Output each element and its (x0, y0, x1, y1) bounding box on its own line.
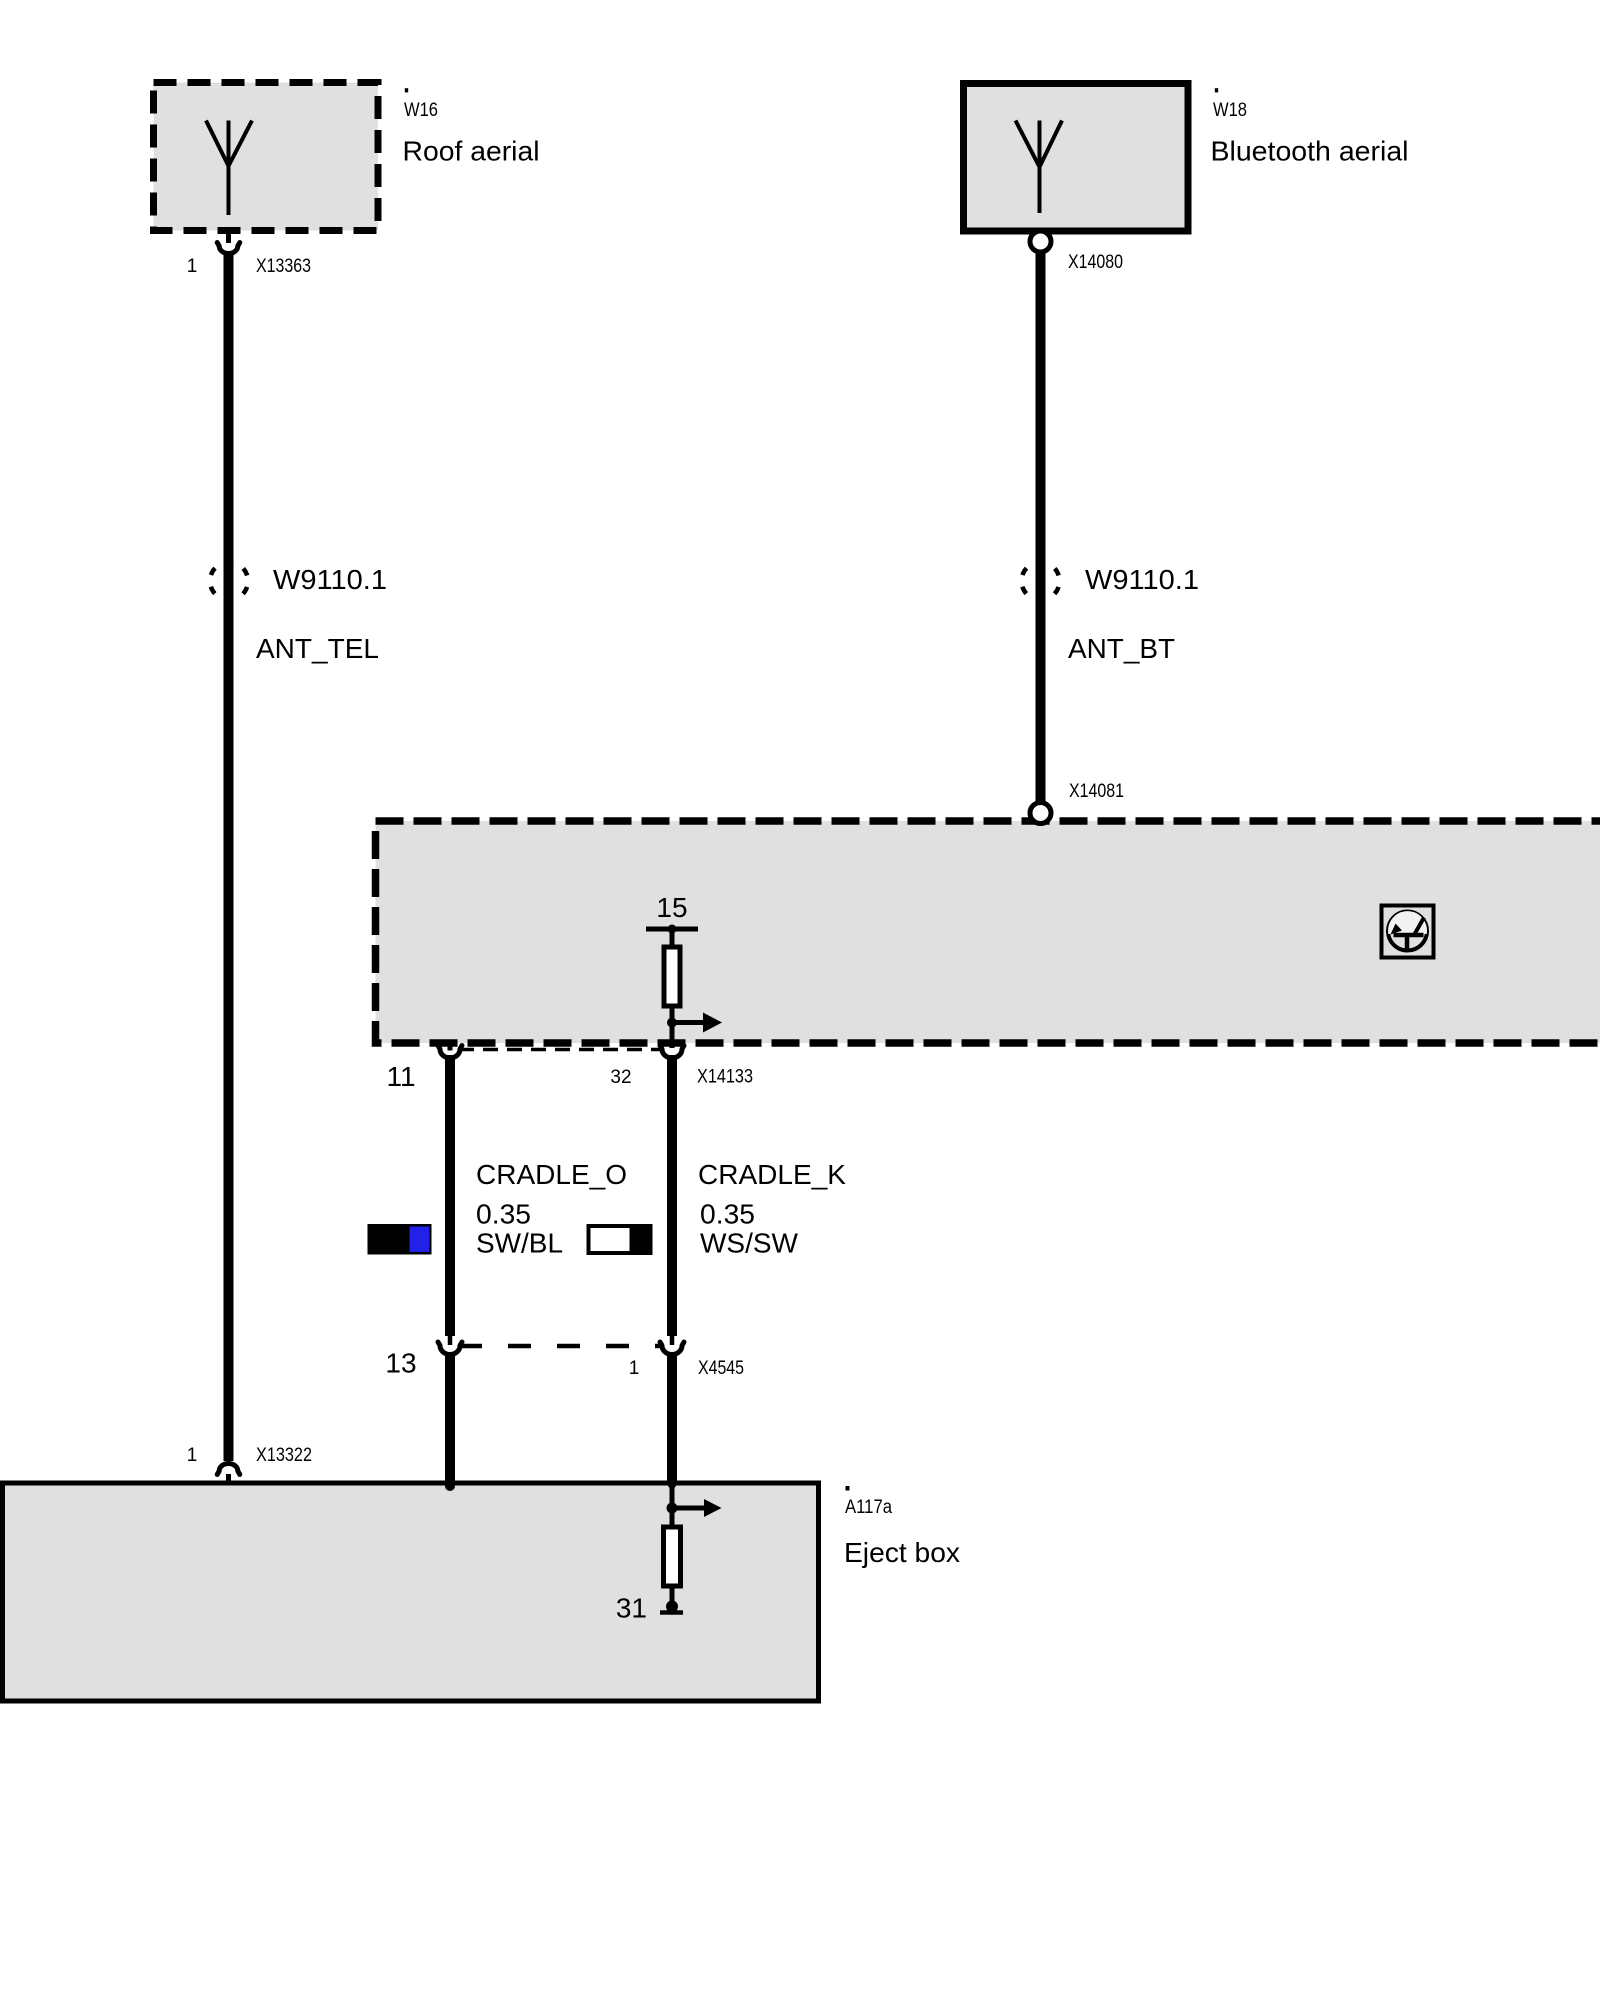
svg-text:32: 32 (610, 1067, 631, 1088)
svg-text:11: 11 (386, 1061, 415, 1092)
svg-text:X14080: X14080 (1068, 252, 1123, 273)
svg-text:CRADLE_O: CRADLE_O (476, 1159, 627, 1190)
svg-text:W16: W16 (404, 100, 438, 121)
svg-text:13: 13 (385, 1348, 416, 1379)
svg-text:0.35: 0.35 (700, 1199, 755, 1230)
svg-text:1: 1 (629, 1358, 640, 1379)
svg-text:X13363: X13363 (256, 256, 311, 277)
svg-text:Roof aerial: Roof aerial (403, 136, 540, 167)
svg-text:WS/SW: WS/SW (700, 1228, 799, 1259)
svg-text:ANT_TEL: ANT_TEL (256, 633, 379, 664)
svg-text:X14081: X14081 (1069, 781, 1124, 802)
svg-text:Bluetooth aerial: Bluetooth aerial (1211, 136, 1409, 167)
svg-text:1: 1 (187, 1445, 198, 1466)
svg-text:W18: W18 (1213, 100, 1247, 121)
svg-text:Eject box: Eject box (844, 1537, 960, 1568)
svg-text:15: 15 (656, 892, 687, 923)
svg-text:W9110.1: W9110.1 (273, 564, 387, 595)
svg-text:0.35: 0.35 (476, 1199, 531, 1230)
svg-text:CRADLE_K: CRADLE_K (698, 1159, 846, 1190)
svg-text:X14133: X14133 (697, 1067, 753, 1088)
svg-text:A117a: A117a (845, 1497, 892, 1518)
svg-text:1: 1 (187, 256, 198, 277)
svg-text:ANT_BT: ANT_BT (1068, 633, 1175, 664)
svg-text:X13322: X13322 (256, 1445, 312, 1466)
svg-text:W9110.1: W9110.1 (1085, 564, 1199, 595)
svg-text:31: 31 (616, 1593, 647, 1624)
svg-text:X4545: X4545 (698, 1358, 744, 1379)
svg-text:SW/BL: SW/BL (476, 1228, 563, 1259)
